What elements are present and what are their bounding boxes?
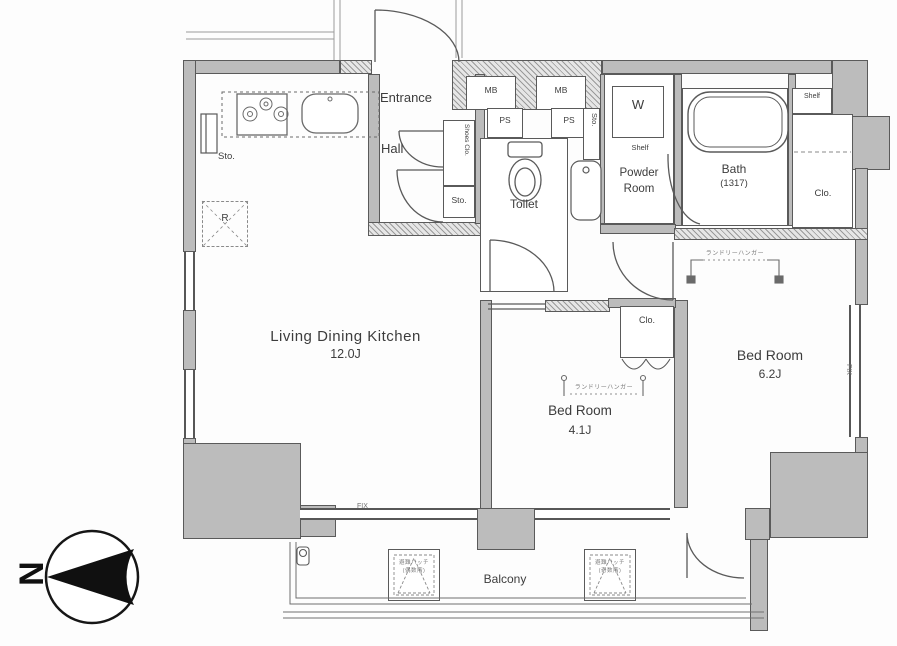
label-hatch-right-sub: (奇数階)	[584, 568, 636, 574]
label-ps-2: PS	[551, 116, 587, 125]
refrigerator-cross-lines	[202, 201, 248, 247]
label-hatch-left-title: 避難ハッチ	[388, 560, 440, 566]
laundry-hanger-icon-main	[687, 260, 783, 283]
exterior-context-lines	[186, 0, 462, 60]
label-fix-east: FIX	[844, 364, 852, 375]
label-laundry-hanger-main: ランドリーハンガー	[696, 251, 774, 258]
label-toilet: Toilet	[484, 198, 564, 211]
folding-door-icon	[622, 359, 670, 369]
kitchen-counter-icon	[222, 92, 379, 137]
label-powder-1: Powder	[604, 167, 674, 180]
room-size-bedroom-main: 6.2J	[710, 368, 830, 381]
label-fix-south: FIX	[357, 503, 368, 511]
label-shoes-closet: Shoes Clo.	[463, 124, 470, 156]
door-swing-toilet	[490, 240, 554, 292]
label-kitchen-storage: Sto.	[218, 152, 235, 162]
door-swing-hall-upper	[399, 131, 443, 167]
plan-linework	[0, 0, 897, 646]
label-balcony: Balcony	[455, 573, 555, 586]
north-arrow-icon	[46, 531, 138, 623]
label-closet-mid: Clo.	[622, 316, 672, 326]
room-label-bedroom-small: Bed Room	[515, 404, 645, 419]
label-hall-storage: Sto.	[443, 196, 475, 205]
label-north: N	[11, 554, 48, 594]
door-swing-hall-lower	[397, 170, 443, 222]
label-shelf-top: Shelf	[793, 93, 831, 101]
label-sto-column: Sto.	[590, 113, 598, 126]
label-shelf-powder: Shelf	[618, 144, 662, 152]
sink-icon	[302, 94, 358, 133]
bathtub-icon	[688, 92, 788, 152]
label-mb-1: MB	[466, 86, 516, 95]
door-swing-balcony	[687, 533, 744, 578]
vanity-icon	[571, 161, 601, 220]
room-label-ldk: Living Dining Kitchen	[228, 329, 463, 346]
floor-plan: Entrance Hall MB MB PS PS Sto. Shoes Clo…	[0, 0, 897, 646]
label-mb-2: MB	[536, 86, 586, 95]
kitchen-storage-icon	[201, 114, 217, 153]
label-closet-right: Clo.	[800, 189, 846, 199]
room-label-bedroom-main: Bed Room	[710, 348, 830, 363]
label-hall: Hall	[381, 142, 403, 156]
toilet-icon	[508, 142, 542, 201]
door-swing-bedroom-main	[613, 242, 673, 300]
label-powder-2: Room	[604, 183, 674, 196]
label-entrance: Entrance	[380, 91, 432, 105]
label-hatch-left-sub: (偶数階)	[388, 568, 440, 574]
label-ps-1: PS	[487, 116, 523, 125]
label-washer: W	[612, 98, 664, 112]
door-swing-entrance	[375, 10, 459, 62]
label-refrigerator: R	[202, 213, 248, 224]
room-size-bedroom-small: 4.1J	[515, 424, 645, 437]
label-bath: Bath	[684, 163, 784, 176]
sliding-door-bedroom-small	[488, 304, 545, 309]
label-hatch-right-title: 避難ハッチ	[584, 560, 636, 566]
label-bath-size: (1317)	[684, 179, 784, 189]
label-laundry-hanger-small: ランドリーハンガー	[568, 385, 640, 392]
room-size-ldk: 12.0J	[228, 348, 463, 362]
faucet-icon	[297, 547, 309, 565]
